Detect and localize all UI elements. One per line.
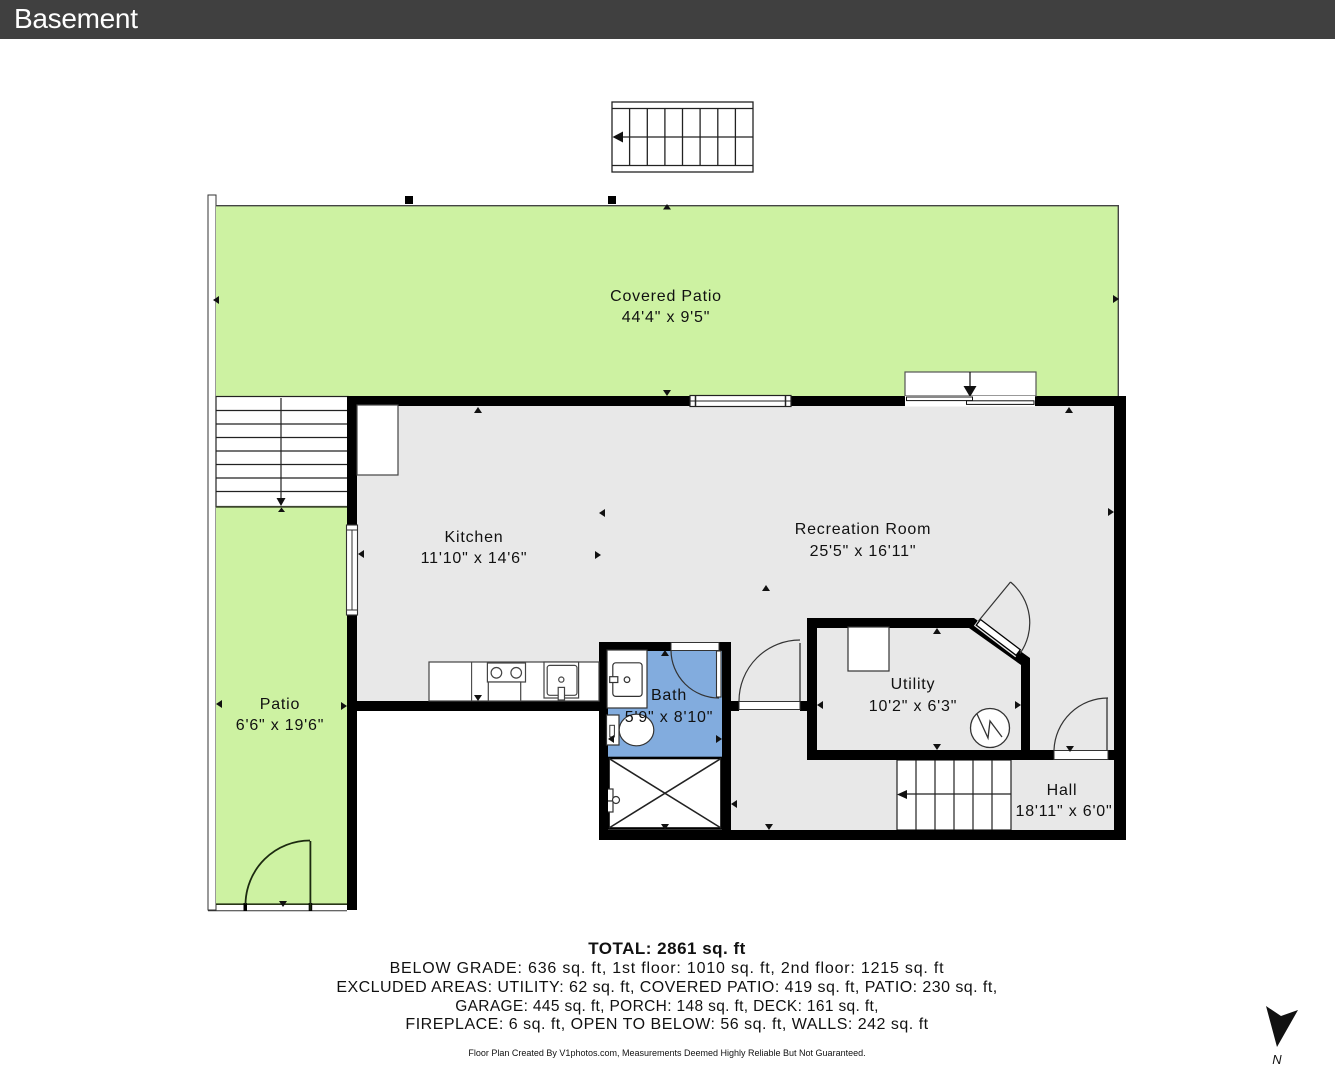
svg-text:TOTAL: 2861 sq. ft: TOTAL: 2861 sq. ft: [588, 939, 746, 958]
svg-text:Recreation Room: Recreation Room: [795, 521, 932, 538]
svg-text:Utility: Utility: [891, 676, 936, 693]
svg-text:5'9" x 8'10": 5'9" x 8'10": [625, 709, 713, 726]
svg-text:Covered Patio: Covered Patio: [610, 288, 722, 305]
svg-text:18'11" x 6'0": 18'11" x 6'0": [1016, 803, 1113, 820]
svg-text:FIREPLACE: 6 sq. ft, OPEN TO B: FIREPLACE: 6 sq. ft, OPEN TO BELOW: 56 s…: [405, 1016, 928, 1033]
svg-text:44'4" x 9'5": 44'4" x 9'5": [622, 309, 710, 326]
svg-text:Bath: Bath: [651, 687, 687, 704]
svg-text:Floor Plan Created By V1photos: Floor Plan Created By V1photos.com, Meas…: [468, 1048, 865, 1058]
svg-text:Hall: Hall: [1047, 782, 1078, 799]
svg-text:25'5" x 16'11": 25'5" x 16'11": [810, 543, 917, 560]
svg-text:Patio: Patio: [260, 696, 300, 713]
svg-text:Kitchen: Kitchen: [445, 529, 504, 546]
svg-text:EXCLUDED AREAS: UTILITY: 62 sq: EXCLUDED AREAS: UTILITY: 62 sq. ft, COVE…: [336, 979, 997, 996]
svg-text:GARAGE: 445 sq. ft, PORCH: 148: GARAGE: 445 sq. ft, PORCH: 148 sq. ft, D…: [455, 998, 879, 1015]
svg-text:BELOW GRADE: 636 sq. ft, 1st f: BELOW GRADE: 636 sq. ft, 1st floor: 1010…: [390, 960, 945, 977]
svg-text:10'2" x 6'3": 10'2" x 6'3": [869, 698, 957, 715]
svg-text:N: N: [1272, 1052, 1282, 1067]
svg-text:6'6" x 19'6": 6'6" x 19'6": [236, 717, 324, 734]
svg-text:11'10" x 14'6": 11'10" x 14'6": [421, 550, 528, 567]
